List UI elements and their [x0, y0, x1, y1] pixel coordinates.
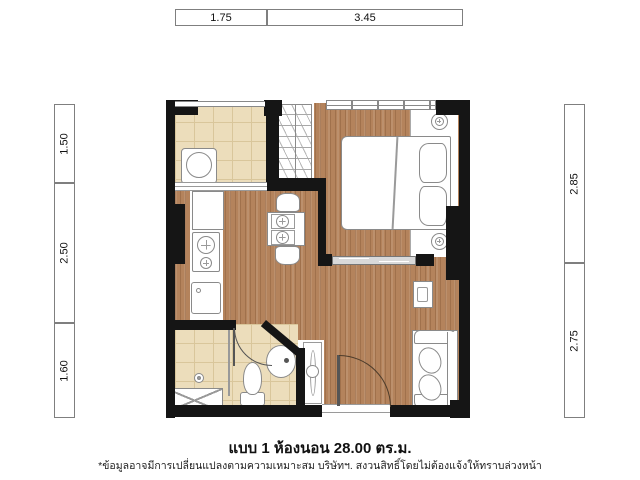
wall: [390, 405, 460, 417]
dimension-box-right-1: 2.85: [564, 104, 585, 263]
toilet-bowl: [243, 362, 262, 395]
dimension-box-left-2: 2.50: [54, 183, 75, 323]
balcony-railing: [175, 101, 265, 107]
stove-burner-icon: [200, 257, 212, 269]
sofa-backrest: [447, 332, 457, 406]
wall: [416, 254, 434, 266]
wall: [318, 178, 326, 265]
wardrobe: [278, 104, 312, 181]
dimension-box-right-2: 2.75: [564, 263, 585, 418]
floor-plan-image: 1.75 3.45 1.50 2.50 1.60 2.85 2.75: [0, 0, 640, 480]
wall: [266, 100, 279, 190]
dimension-box-top-1: 1.75: [175, 9, 267, 26]
dimension-label: 1.50: [59, 133, 71, 154]
bedroom-sliding-door: [332, 256, 416, 265]
fridge: [192, 191, 224, 230]
wall: [318, 254, 332, 266]
dimension-box-left-3: 1.60: [54, 323, 75, 418]
wall-column: [446, 206, 470, 280]
disclaimer-text: *ข้อมูลอาจมีการเปลี่ยนแปลงตามความเหมาะสม…: [60, 457, 580, 474]
dimension-box-left-1: 1.50: [54, 104, 75, 183]
wall: [166, 320, 236, 330]
wall-column: [166, 204, 185, 264]
stove-burner-icon: [197, 236, 215, 254]
nightstand-lamp-icon: [435, 117, 444, 126]
washing-machine-drum-icon: [186, 152, 212, 178]
nightstand-lamp-icon: [435, 237, 444, 246]
dimension-label: 1.60: [59, 360, 71, 381]
bedroom-window: [326, 100, 436, 110]
cabinet-knob-icon: [306, 365, 319, 378]
pillow: [419, 186, 447, 226]
pillow: [419, 143, 447, 183]
balcony-sliding-door: [175, 182, 267, 191]
dimension-label: 1.75: [210, 12, 231, 24]
dimension-label: 3.45: [354, 12, 375, 24]
kitchen-sink: [191, 282, 221, 314]
floor-drain-icon: [197, 376, 201, 380]
wall: [266, 178, 326, 191]
plate-icon: [276, 231, 289, 244]
wall: [296, 348, 305, 407]
dimension-label: 2.50: [59, 242, 71, 263]
tv-icon: [417, 287, 428, 302]
shower-partition: [228, 330, 230, 396]
dining-chair: [275, 246, 300, 265]
dining-chair: [276, 193, 300, 212]
faucet-icon: [196, 288, 201, 293]
dimension-label: 2.85: [569, 173, 581, 194]
dimension-label: 2.75: [569, 330, 581, 351]
dimension-box-top-2: 3.45: [267, 9, 463, 26]
basin-faucet-icon: [284, 358, 289, 363]
plate-icon: [276, 215, 289, 228]
